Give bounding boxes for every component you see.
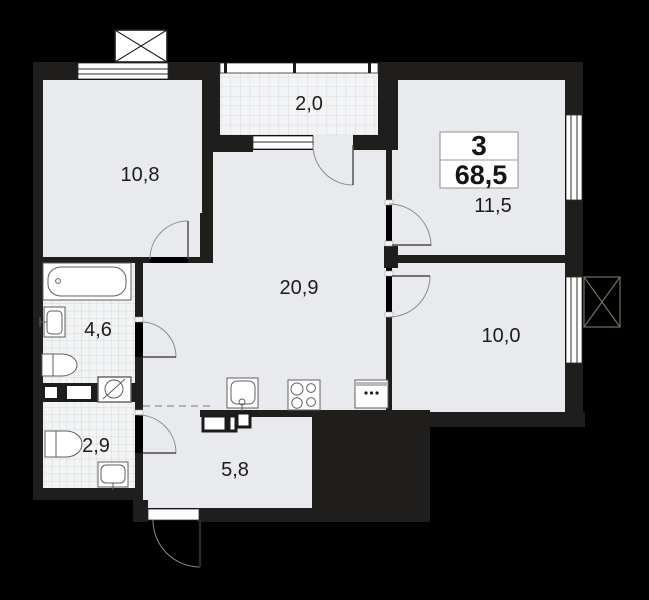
bathroom-sink-icon bbox=[40, 307, 65, 337]
plumbing-shaft-icon bbox=[44, 386, 58, 399]
window-bedroom-top-right bbox=[566, 115, 582, 200]
ac-basket-right-icon bbox=[584, 277, 620, 327]
room-label-hallway: 5,8 bbox=[221, 459, 249, 481]
kitchen-cabinets-icon bbox=[203, 413, 250, 431]
balcony-door-threshold bbox=[313, 135, 353, 151]
stove-icon bbox=[288, 380, 320, 410]
window-bedroom-right bbox=[566, 277, 582, 363]
wc-sink-icon bbox=[98, 462, 128, 490]
fridge-icon bbox=[355, 380, 388, 408]
room-label-bedroom-top-right: 11,5 bbox=[474, 195, 511, 217]
balcony-railing bbox=[220, 63, 378, 73]
bathtub-icon bbox=[43, 263, 131, 300]
wc-toilet-icon bbox=[45, 431, 82, 457]
badge-total-area: 68,5 bbox=[455, 160, 508, 190]
room-label-wc: 2,9 bbox=[82, 435, 110, 457]
window-balcony-living bbox=[253, 136, 313, 149]
apartment-info-badge: 3 68,5 bbox=[440, 130, 518, 190]
room-label-bedroom-top-left: 10,8 bbox=[121, 164, 160, 186]
room-label-balcony: 2,0 bbox=[295, 93, 323, 115]
badge-rooms-count: 3 bbox=[471, 130, 487, 161]
entrance-door-arc bbox=[153, 520, 200, 567]
ventilation-shaft-icon bbox=[66, 385, 92, 400]
floor-plan-page: 10,8 2,0 11,5 20,9 4,6 10,0 2,9 5,8 3 68… bbox=[0, 0, 649, 600]
room-bedroom-right-floor bbox=[392, 263, 565, 412]
washing-machine-icon bbox=[98, 377, 131, 402]
bathroom-toilet-icon bbox=[42, 354, 77, 376]
window-bedroom-top-left bbox=[78, 63, 168, 79]
vent-basket-top-icon bbox=[115, 30, 167, 62]
entrance-threshold bbox=[148, 509, 199, 520]
room-label-living-kitchen: 20,9 bbox=[280, 277, 319, 299]
room-label-bathroom: 4,6 bbox=[84, 319, 112, 341]
room-label-bedroom-right: 10,0 bbox=[482, 325, 521, 347]
floor-plan-canvas: 10,8 2,0 11,5 20,9 4,6 10,0 2,9 5,8 3 68… bbox=[0, 0, 649, 600]
kitchen-sink-icon bbox=[227, 378, 258, 411]
service-shafts bbox=[44, 385, 92, 400]
